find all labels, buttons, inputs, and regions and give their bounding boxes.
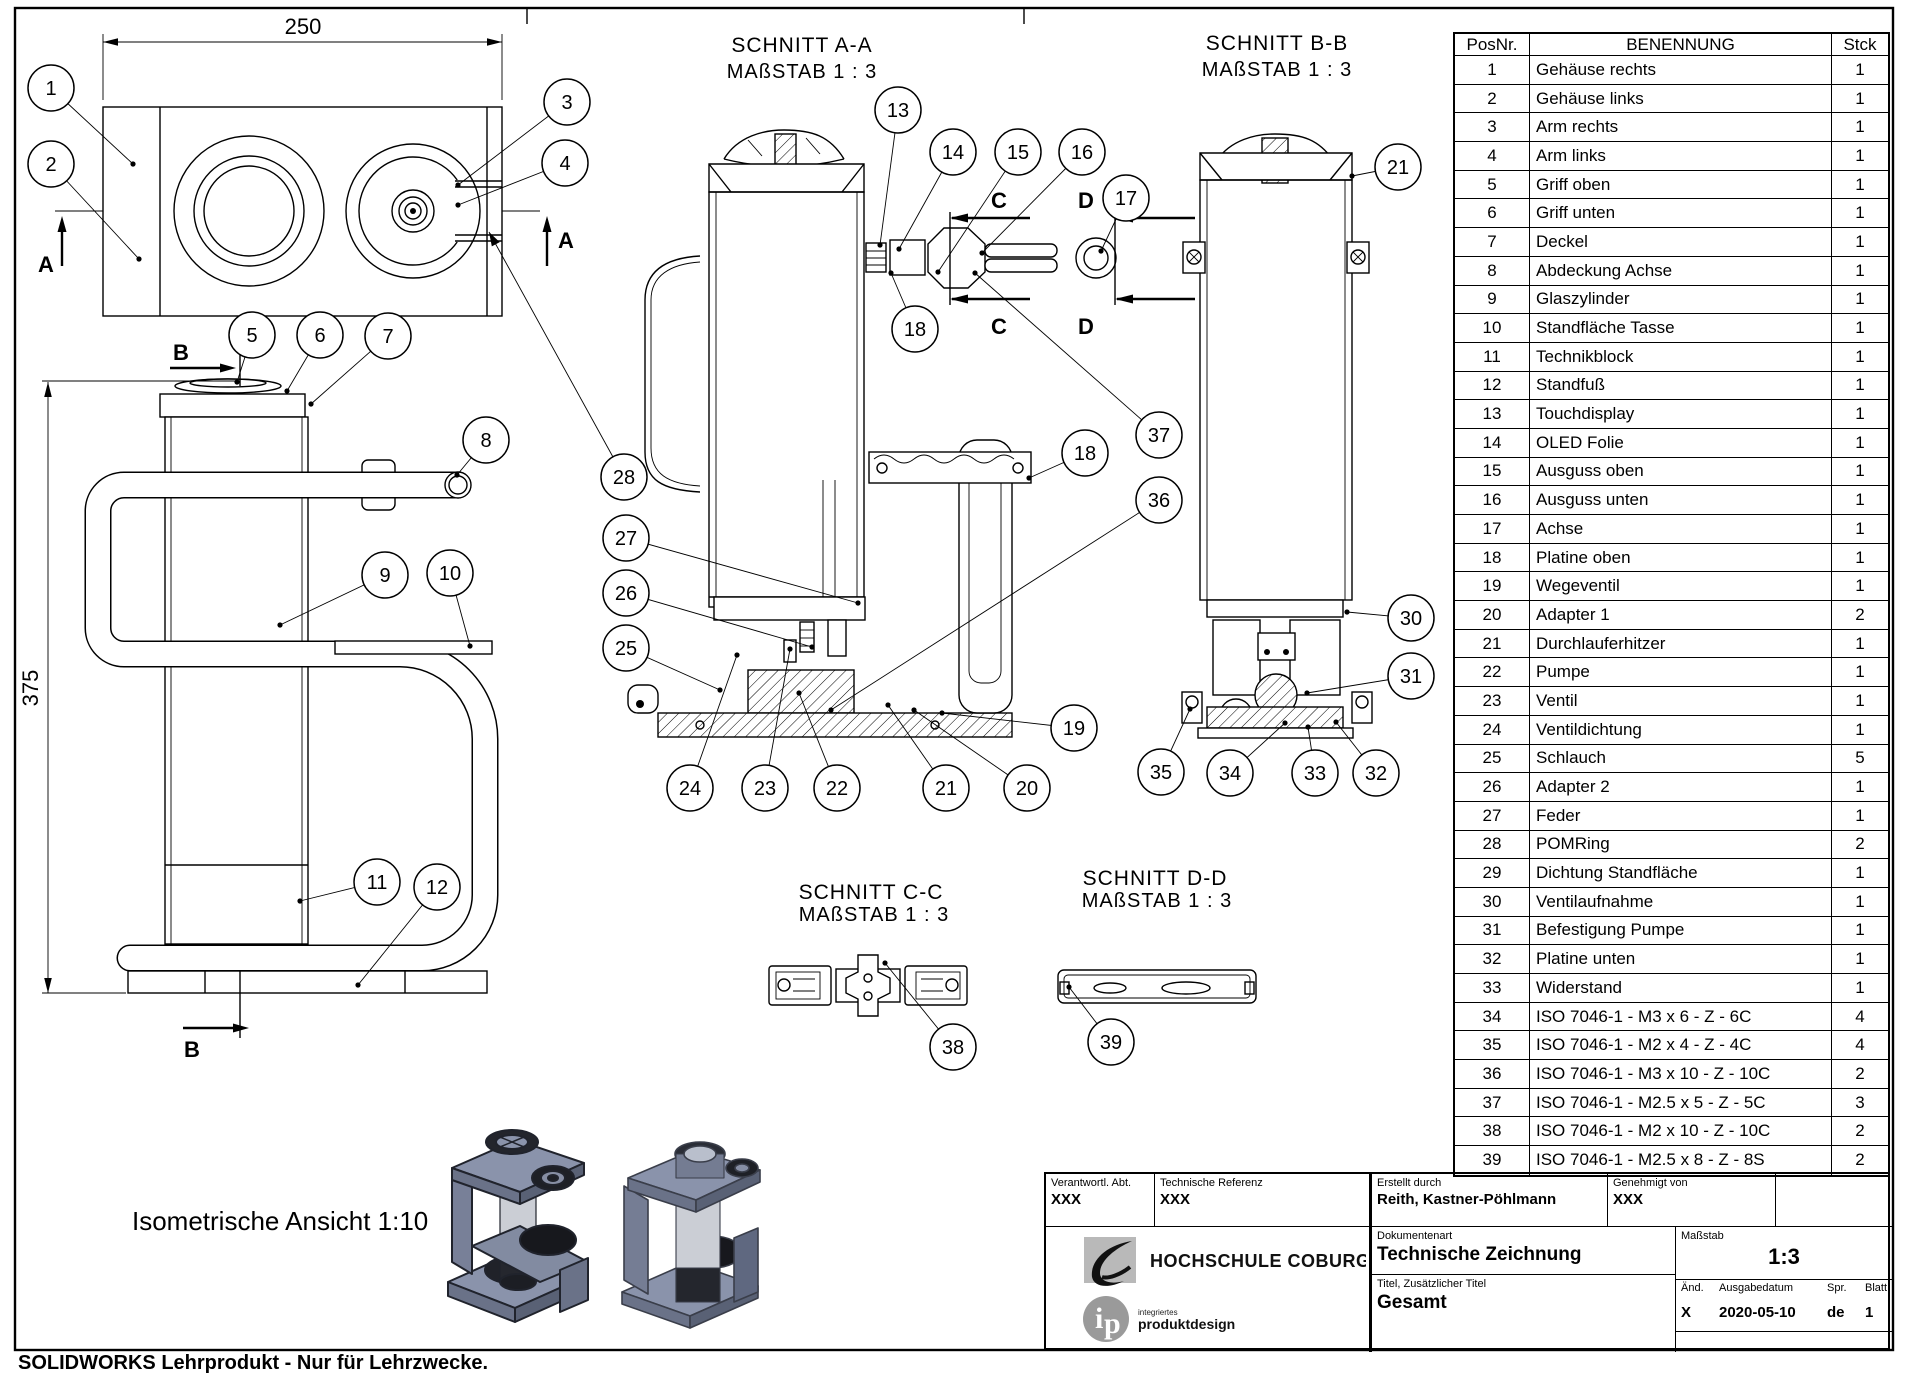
table-row: 3Arm rechts1: [1455, 113, 1888, 142]
section-aa-title: SCHNITT A-A: [731, 34, 872, 57]
dim-height-label: 375: [18, 670, 43, 707]
part-name: OLED Folie: [1530, 429, 1832, 457]
section-a-label-right: A: [558, 228, 574, 253]
svg-text:37: 37: [1148, 425, 1170, 447]
table-row: 33Widerstand1: [1455, 974, 1888, 1003]
svg-text:6: 6: [314, 325, 325, 347]
document-type-value: Technische Zeichnung: [1377, 1244, 1670, 1266]
part-qty: 1: [1832, 113, 1888, 141]
table-row: 8Abdeckung Achse1: [1455, 257, 1888, 286]
svg-text:32: 32: [1365, 763, 1387, 785]
svg-text:17: 17: [1115, 188, 1137, 210]
part-qty: 1: [1832, 515, 1888, 543]
part-qty: 1: [1832, 716, 1888, 744]
scale-value: 1:3: [1681, 1244, 1887, 1270]
part-pos: 36: [1455, 1060, 1530, 1088]
date-label: Ausgabedatum: [1719, 1282, 1827, 1294]
svg-text:22: 22: [826, 778, 848, 800]
section-a-label-left: A: [38, 252, 54, 277]
part-name: Standfläche Tasse: [1530, 314, 1832, 342]
svg-text:10: 10: [439, 563, 461, 585]
svg-text:23: 23: [754, 778, 776, 800]
part-name: Dichtung Standfläche: [1530, 859, 1832, 887]
section-b-label-top: B: [173, 340, 189, 365]
part-qty: 5: [1832, 745, 1888, 773]
part-name: Schlauch: [1530, 745, 1832, 773]
table-row: 22Pumpe1: [1455, 658, 1888, 687]
part-qty: 1: [1832, 228, 1888, 256]
balloon-18: 18: [888, 270, 938, 352]
top-view: 250 A A: [38, 14, 574, 316]
cell-title: Titel, Zusätzlicher Titel Gesamt: [1370, 1275, 1676, 1352]
svg-text:7: 7: [382, 326, 393, 348]
part-name: Standfuß: [1530, 372, 1832, 400]
balloon-25: 25: [603, 625, 723, 693]
section-b-label-bottom: B: [184, 1037, 200, 1062]
part-pos: 10: [1455, 314, 1530, 342]
lang-label: Spr.: [1827, 1282, 1865, 1294]
part-qty: 1: [1832, 888, 1888, 916]
balloon-18: 18: [1026, 430, 1108, 481]
isometric-render-right: [622, 1142, 760, 1328]
cell-document-type: Dokumentenart Technische Zeichnung: [1370, 1227, 1676, 1275]
svg-text:24: 24: [679, 778, 701, 800]
part-name: Pumpe: [1530, 658, 1832, 686]
svg-text:9: 9: [379, 565, 390, 587]
svg-text:1: 1: [45, 78, 56, 100]
part-qty: 1: [1832, 544, 1888, 572]
part-pos: 15: [1455, 458, 1530, 486]
part-name: Wegeventil: [1530, 572, 1832, 600]
part-name: Ausguss unten: [1530, 486, 1832, 514]
part-pos: 29: [1455, 859, 1530, 887]
part-name: Deckel: [1530, 228, 1832, 256]
part-pos: 31: [1455, 917, 1530, 945]
part-pos: 26: [1455, 773, 1530, 801]
table-row: 9Glaszylinder1: [1455, 286, 1888, 315]
part-qty: 1: [1832, 142, 1888, 170]
part-pos: 9: [1455, 286, 1530, 314]
part-qty: 1: [1832, 945, 1888, 973]
svg-text:39: 39: [1100, 1032, 1122, 1054]
svg-text:4: 4: [559, 153, 570, 175]
part-pos: 4: [1455, 142, 1530, 170]
svg-text:27: 27: [615, 528, 637, 550]
part-name: Glaszylinder: [1530, 286, 1832, 314]
part-name: POMRing: [1530, 831, 1832, 859]
part-qty: 1: [1832, 199, 1888, 227]
part-name: ISO 7046-1 - M2 x 4 - Z - 4C: [1530, 1031, 1832, 1059]
header-benennung: BENENNUNG: [1530, 34, 1832, 55]
part-qty: 1: [1832, 429, 1888, 457]
table-row: 24Ventildichtung1: [1455, 716, 1888, 745]
section-dd-view: SCHNITT D-D MAßSTAB 1 : 3: [1058, 867, 1256, 1003]
part-qty: 1: [1832, 630, 1888, 658]
table-row: 37ISO 7046-1 - M2.5 x 5 - Z - 5C3: [1455, 1089, 1888, 1118]
balloon-28: 28: [485, 230, 647, 500]
table-row: 30Ventilaufnahme1: [1455, 888, 1888, 917]
section-cc-view: SCHNITT C-C MAßSTAB 1 : 3: [769, 881, 967, 1016]
balloon-5: 5: [229, 312, 275, 385]
part-name: Adapter 2: [1530, 773, 1832, 801]
part-name: Achse: [1530, 515, 1832, 543]
part-name: Gehäuse links: [1530, 85, 1832, 113]
balloon-30: 30: [1344, 595, 1434, 641]
svg-text:19: 19: [1063, 718, 1085, 740]
section-dd-scale: MAßSTAB 1 : 3: [1082, 890, 1232, 912]
table-row: 25Schlauch5: [1455, 745, 1888, 774]
table-row: 38ISO 7046-1 - M2 x 10 - Z - 10C2: [1455, 1117, 1888, 1146]
svg-text:12: 12: [426, 877, 448, 899]
svg-text:31: 31: [1400, 666, 1422, 688]
balloon-13: 13: [875, 87, 921, 248]
svg-text:2: 2: [45, 154, 56, 176]
part-qty: 4: [1832, 1003, 1888, 1031]
part-pos: 5: [1455, 171, 1530, 199]
dim-width-label: 250: [285, 14, 322, 39]
part-name: Arm links: [1530, 142, 1832, 170]
created-by-label: Erstellt durch: [1377, 1177, 1602, 1189]
section-aa-view: SCHNITT A-A MAßSTAB 1 : 3: [628, 34, 1195, 737]
table-row: 13Touchdisplay1: [1455, 400, 1888, 429]
part-name: ISO 7046-1 - M3 x 10 - Z - 10C: [1530, 1060, 1832, 1088]
table-row: 21Durchlauferhitzer1: [1455, 630, 1888, 659]
responsible-dept-value: XXX: [1051, 1191, 1149, 1208]
isometric-view: Isometrische Ansicht 1:10: [132, 1130, 760, 1328]
part-pos: 34: [1455, 1003, 1530, 1031]
table-row: 18Platine oben1: [1455, 544, 1888, 573]
table-row: 26Adapter 21: [1455, 773, 1888, 802]
table-row: 39ISO 7046-1 - M2.5 x 8 - Z - 8S2: [1455, 1146, 1888, 1175]
isometric-render-left: [448, 1130, 588, 1322]
section-c-label-top: C: [991, 188, 1007, 213]
header-stck: Stck: [1832, 34, 1888, 55]
technical-reference-label: Technische Referenz: [1160, 1177, 1364, 1189]
table-row: 1Gehäuse rechts1: [1455, 56, 1888, 85]
section-c-label-bottom: C: [991, 314, 1007, 339]
part-name: ISO 7046-1 - M2.5 x 8 - Z - 8S: [1530, 1146, 1832, 1175]
table-row: 29Dichtung Standfläche1: [1455, 859, 1888, 888]
scale-label: Maßstab: [1681, 1230, 1887, 1242]
part-pos: 18: [1455, 544, 1530, 572]
sheet-value: 1: [1865, 1304, 1873, 1321]
balloon-6: 6: [284, 312, 343, 394]
part-qty: 1: [1832, 687, 1888, 715]
technical-reference-value: XXX: [1160, 1191, 1364, 1208]
part-pos: 19: [1455, 572, 1530, 600]
part-pos: 12: [1455, 372, 1530, 400]
part-pos: 8: [1455, 257, 1530, 285]
svg-text:8: 8: [480, 430, 491, 452]
title-value: Gesamt: [1377, 1292, 1670, 1314]
svg-text:13: 13: [887, 100, 909, 122]
table-row: 32Platine unten1: [1455, 945, 1888, 974]
part-qty: 4: [1832, 1031, 1888, 1059]
part-qty: 1: [1832, 974, 1888, 1002]
part-qty: 1: [1832, 314, 1888, 342]
part-qty: 1: [1832, 486, 1888, 514]
part-qty: 2: [1832, 1060, 1888, 1088]
svg-text:16: 16: [1071, 142, 1093, 164]
table-row: 36ISO 7046-1 - M3 x 10 - Z - 10C2: [1455, 1060, 1888, 1089]
part-name: Touchdisplay: [1530, 400, 1832, 428]
part-name: Befestigung Pumpe: [1530, 917, 1832, 945]
part-name: ISO 7046-1 - M3 x 6 - Z - 6C: [1530, 1003, 1832, 1031]
part-qty: 1: [1832, 400, 1888, 428]
svg-text:5: 5: [246, 325, 257, 347]
table-row: 14OLED Folie1: [1455, 429, 1888, 458]
svg-text:33: 33: [1304, 763, 1326, 785]
part-name: ISO 7046-1 - M2.5 x 5 - Z - 5C: [1530, 1089, 1832, 1117]
part-pos: 37: [1455, 1089, 1530, 1117]
part-pos: 1: [1455, 56, 1530, 84]
table-row: 27Feder1: [1455, 802, 1888, 831]
logo-sub-bottom: produktdesign: [1138, 1316, 1235, 1332]
part-qty: 2: [1832, 1146, 1888, 1175]
cell-technical-reference: Technische Referenz XXX: [1155, 1174, 1370, 1227]
table-row: 12Standfuß1: [1455, 372, 1888, 401]
part-name: Ventilaufnahme: [1530, 888, 1832, 916]
part-pos: 27: [1455, 802, 1530, 830]
part-name: Ausguss oben: [1530, 458, 1832, 486]
part-qty: 1: [1832, 343, 1888, 371]
balloon-10: 10: [427, 550, 473, 649]
svg-text:34: 34: [1219, 763, 1241, 785]
part-qty: 1: [1832, 372, 1888, 400]
svg-text:30: 30: [1400, 608, 1422, 630]
table-row: 34ISO 7046-1 - M3 x 6 - Z - 6C4: [1455, 1003, 1888, 1032]
table-row: 11Technikblock1: [1455, 343, 1888, 372]
part-name: Adapter 1: [1530, 601, 1832, 629]
footer-note: SOLIDWORKS Lehrprodukt - Nur für Lehrzwe…: [18, 1352, 488, 1375]
svg-text:28: 28: [613, 467, 635, 489]
balloon-11: 11: [297, 859, 400, 905]
part-qty: 2: [1832, 831, 1888, 859]
section-aa-scale: MAßSTAB 1 : 3: [727, 61, 877, 83]
part-name: Ventildichtung: [1530, 716, 1832, 744]
section-cc-title: SCHNITT C-C: [799, 881, 944, 904]
table-row: 15Ausguss oben1: [1455, 458, 1888, 487]
part-pos: 25: [1455, 745, 1530, 773]
part-pos: 6: [1455, 199, 1530, 227]
isometric-caption: Isometrische Ansicht 1:10: [132, 1206, 428, 1236]
parts-list-table: PosNr. BENENNUNG Stck 1Gehäuse rechts12G…: [1453, 32, 1890, 1177]
part-qty: 1: [1832, 257, 1888, 285]
front-view: 375 B B: [18, 340, 492, 1062]
section-d-label-top: D: [1078, 188, 1094, 213]
lang-value: de: [1827, 1304, 1865, 1321]
part-pos: 14: [1455, 429, 1530, 457]
title-block: Verantwortl. Abt. XXX Technische Referen…: [1044, 1172, 1890, 1350]
dimension-250: 250: [103, 14, 502, 100]
part-pos: 3: [1455, 113, 1530, 141]
parts-table-body: 1Gehäuse rechts12Gehäuse links13Arm rech…: [1455, 56, 1888, 1175]
part-name: Platine unten: [1530, 945, 1832, 973]
part-name: Griff unten: [1530, 199, 1832, 227]
balloon-8: 8: [454, 417, 509, 478]
responsible-dept-label: Verantwortl. Abt.: [1051, 1177, 1149, 1189]
logo-name: HOCHSCHULE COBURG: [1150, 1251, 1366, 1271]
table-row: 4Arm links1: [1455, 142, 1888, 171]
section-dd-title: SCHNITT D-D: [1083, 867, 1228, 890]
section-d-label-bottom: D: [1078, 314, 1094, 339]
part-name: Griff oben: [1530, 171, 1832, 199]
svg-text:3: 3: [561, 92, 572, 114]
header-posnr: PosNr.: [1455, 34, 1530, 55]
part-name: Gehäuse rechts: [1530, 56, 1832, 84]
part-pos: 23: [1455, 687, 1530, 715]
cell-top-empty: [1776, 1174, 1892, 1227]
rev-label: Änd.: [1681, 1282, 1719, 1294]
part-qty: 1: [1832, 171, 1888, 199]
part-name: Durchlauferhitzer: [1530, 630, 1832, 658]
table-row: 10Standfläche Tasse1: [1455, 314, 1888, 343]
part-pos: 21: [1455, 630, 1530, 658]
part-pos: 30: [1455, 888, 1530, 916]
part-pos: 11: [1455, 343, 1530, 371]
table-row: 23Ventil1: [1455, 687, 1888, 716]
table-row: 6Griff unten1: [1455, 199, 1888, 228]
part-qty: 3: [1832, 1089, 1888, 1117]
svg-text:35: 35: [1150, 762, 1172, 784]
parts-list-header: PosNr. BENENNUNG Stck: [1455, 34, 1888, 56]
svg-text:20: 20: [1016, 778, 1038, 800]
svg-text:18: 18: [904, 319, 926, 341]
part-qty: 1: [1832, 56, 1888, 84]
part-name: ISO 7046-1 - M2 x 10 - Z - 10C: [1530, 1117, 1832, 1145]
table-row: 31Befestigung Pumpe1: [1455, 917, 1888, 946]
cell-approved-by: Genehmigt von XXX: [1608, 1174, 1776, 1227]
part-pos: 13: [1455, 400, 1530, 428]
section-cc-scale: MAßSTAB 1 : 3: [799, 904, 949, 926]
part-pos: 22: [1455, 658, 1530, 686]
cell-revision: Änd. Ausgabedatum Spr. Blatt X 2020-05-1…: [1676, 1280, 1892, 1332]
part-qty: 1: [1832, 773, 1888, 801]
svg-text:14: 14: [942, 142, 964, 164]
part-pos: 7: [1455, 228, 1530, 256]
table-row: 19Wegeventil1: [1455, 572, 1888, 601]
part-pos: 33: [1455, 974, 1530, 1002]
part-pos: 32: [1455, 945, 1530, 973]
part-name: Widerstand: [1530, 974, 1832, 1002]
part-qty: 2: [1832, 601, 1888, 629]
document-type-label: Dokumentenart: [1377, 1230, 1670, 1242]
table-row: 5Griff oben1: [1455, 171, 1888, 200]
table-row: 7Deckel1: [1455, 228, 1888, 257]
cell-responsible-dept: Verantwortl. Abt. XXX: [1046, 1174, 1155, 1227]
table-row: 16Ausguss unten1: [1455, 486, 1888, 515]
section-bb-title: SCHNITT B-B: [1206, 32, 1348, 55]
created-by-value: Reith, Kastner-Pöhlmann: [1377, 1191, 1602, 1208]
part-qty: 2: [1832, 1117, 1888, 1145]
rev-value: X: [1681, 1304, 1719, 1321]
part-pos: 39: [1455, 1146, 1530, 1175]
part-pos: 16: [1455, 486, 1530, 514]
svg-text:36: 36: [1148, 490, 1170, 512]
svg-text:i: i: [1095, 1302, 1103, 1335]
part-qty: 1: [1832, 85, 1888, 113]
part-name: Abdeckung Achse: [1530, 257, 1832, 285]
svg-text:25: 25: [615, 638, 637, 660]
approved-by-label: Genehmigt von: [1613, 1177, 1770, 1189]
svg-text:21: 21: [1387, 157, 1409, 179]
title-label: Titel, Zusätzlicher Titel: [1377, 1278, 1670, 1290]
table-row: 17Achse1: [1455, 515, 1888, 544]
table-row: 35ISO 7046-1 - M2 x 4 - Z - 4C4: [1455, 1031, 1888, 1060]
cell-scale: Maßstab 1:3: [1676, 1227, 1892, 1280]
cell-created-by: Erstellt durch Reith, Kastner-Pöhlmann: [1370, 1174, 1608, 1227]
part-pos: 20: [1455, 601, 1530, 629]
svg-text:p: p: [1104, 1307, 1121, 1340]
drawing-sheet: 250 A A: [0, 0, 1920, 1383]
part-qty: 1: [1832, 286, 1888, 314]
section-bb-view: SCHNITT B-B MAßSTAB 1 : 3: [1182, 32, 1372, 738]
part-name: Feder: [1530, 802, 1832, 830]
table-row: 2Gehäuse links1: [1455, 85, 1888, 114]
table-row: 28POMRing2: [1455, 831, 1888, 860]
part-name: Technikblock: [1530, 343, 1832, 371]
svg-text:11: 11: [367, 872, 388, 894]
part-name: Ventil: [1530, 687, 1832, 715]
part-name: Platine oben: [1530, 544, 1832, 572]
balloon-21: 21: [1349, 144, 1421, 190]
part-qty: 1: [1832, 917, 1888, 945]
table-row: 20Adapter 12: [1455, 601, 1888, 630]
date-value: 2020-05-10: [1719, 1304, 1827, 1321]
svg-text:15: 15: [1007, 142, 1029, 164]
part-qty: 1: [1832, 802, 1888, 830]
part-pos: 28: [1455, 831, 1530, 859]
part-pos: 17: [1455, 515, 1530, 543]
cell-bottom-empty: [1676, 1332, 1892, 1352]
part-pos: 2: [1455, 85, 1530, 113]
svg-text:26: 26: [615, 583, 637, 605]
balloon-32: 32: [1333, 719, 1399, 796]
part-pos: 35: [1455, 1031, 1530, 1059]
part-pos: 24: [1455, 716, 1530, 744]
logo-graphics: i p integriertes produktdesign HOCHSCHUL…: [1046, 1227, 1366, 1347]
section-bb-scale: MAßSTAB 1 : 3: [1202, 59, 1352, 81]
svg-text:21: 21: [935, 778, 957, 800]
svg-text:18: 18: [1074, 443, 1096, 465]
approved-by-value: XXX: [1613, 1191, 1770, 1208]
part-pos: 38: [1455, 1117, 1530, 1145]
svg-text:38: 38: [942, 1037, 964, 1059]
cell-logo: i p integriertes produktdesign HOCHSCHUL…: [1046, 1227, 1370, 1352]
part-qty: 1: [1832, 458, 1888, 486]
sheet-label: Blatt: [1865, 1282, 1887, 1294]
part-qty: 1: [1832, 658, 1888, 686]
part-qty: 1: [1832, 572, 1888, 600]
part-name: Arm rechts: [1530, 113, 1832, 141]
part-qty: 1: [1832, 859, 1888, 887]
